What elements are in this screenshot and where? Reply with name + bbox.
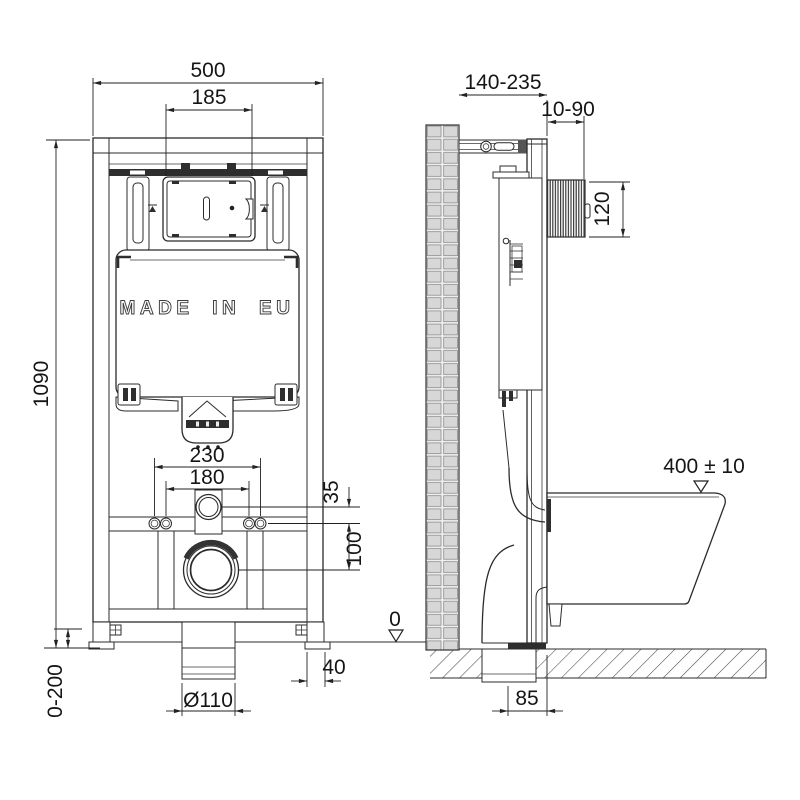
drain-pipe [182, 622, 235, 679]
dim-frame-depth: 140-235 [459, 71, 547, 136]
frame-foot-side [508, 643, 546, 649]
dim-bowl-height-label: 400 ± 10 [663, 455, 745, 478]
dim-actuator-height-label: 120 [591, 191, 614, 226]
made-in-eu-label: MADE IN EU [120, 298, 295, 319]
foot-screw-right [296, 625, 307, 635]
dim-foot-width-label: 40 [322, 656, 345, 679]
flush-rod-slot [204, 197, 210, 220]
floor-hatch [430, 649, 766, 678]
dim-foot-adjust-label: 0-200 [44, 664, 67, 718]
tiled-wall [426, 125, 459, 650]
dim-fixing-inner-label: 180 [189, 466, 224, 489]
dim-frame-depth-label: 140-235 [464, 71, 541, 94]
installation-frame-diagram: MADE IN EU [0, 0, 800, 800]
hanger-rail-right [267, 177, 289, 257]
side-view: 140-235 10-90 120 400 ± 10 0 85 [389, 71, 766, 716]
inspection-box [163, 177, 255, 241]
dim-inlet-to-outlet-label: 100 [343, 531, 366, 566]
floor-drain-pipe [482, 649, 536, 682]
technical-drawing: MADE IN EU [0, 0, 800, 800]
bowl-outlet-foot [549, 604, 562, 626]
dim-frame-height: 1090 [30, 140, 90, 648]
datum-triangle-icon [389, 630, 403, 642]
bowl-height-marker: 400 ± 10 [663, 455, 745, 492]
flush-actuator-sleeve [547, 180, 590, 237]
toilet-bowl [547, 493, 725, 626]
dim-cutout-width-label: 185 [191, 86, 226, 109]
dim-outlet-diameter-label: Ø110 [183, 689, 233, 712]
foot-screw-left [110, 625, 121, 635]
wall-bracket [459, 140, 527, 154]
pushrod-dot [230, 206, 235, 211]
floor-datum-marker: 0 [389, 608, 403, 642]
drain-outlet [184, 543, 239, 598]
dim-actuator-depth: 10-90 [541, 98, 595, 179]
dim-outlet-diameter: Ø110 [166, 683, 251, 716]
dim-frame-height-label: 1090 [30, 361, 53, 408]
dim-fixing-outer-label: 230 [189, 444, 224, 467]
hanger-rail-left [127, 177, 149, 257]
dim-outlet-to-front-label: 85 [515, 687, 538, 710]
dim-actuator-depth-label: 10-90 [541, 98, 595, 121]
water-inlet [195, 490, 222, 534]
front-view: MADE IN EU [30, 59, 426, 718]
dim-foot-width: 40 [291, 652, 346, 687]
floor-datum-label: 0 [389, 608, 401, 631]
dim-inlet-offset-label: 35 [320, 480, 343, 503]
dim-actuator-height: 120 [589, 182, 630, 237]
level-triangle-icon [694, 481, 708, 492]
dim-frame-width-label: 500 [190, 59, 225, 82]
